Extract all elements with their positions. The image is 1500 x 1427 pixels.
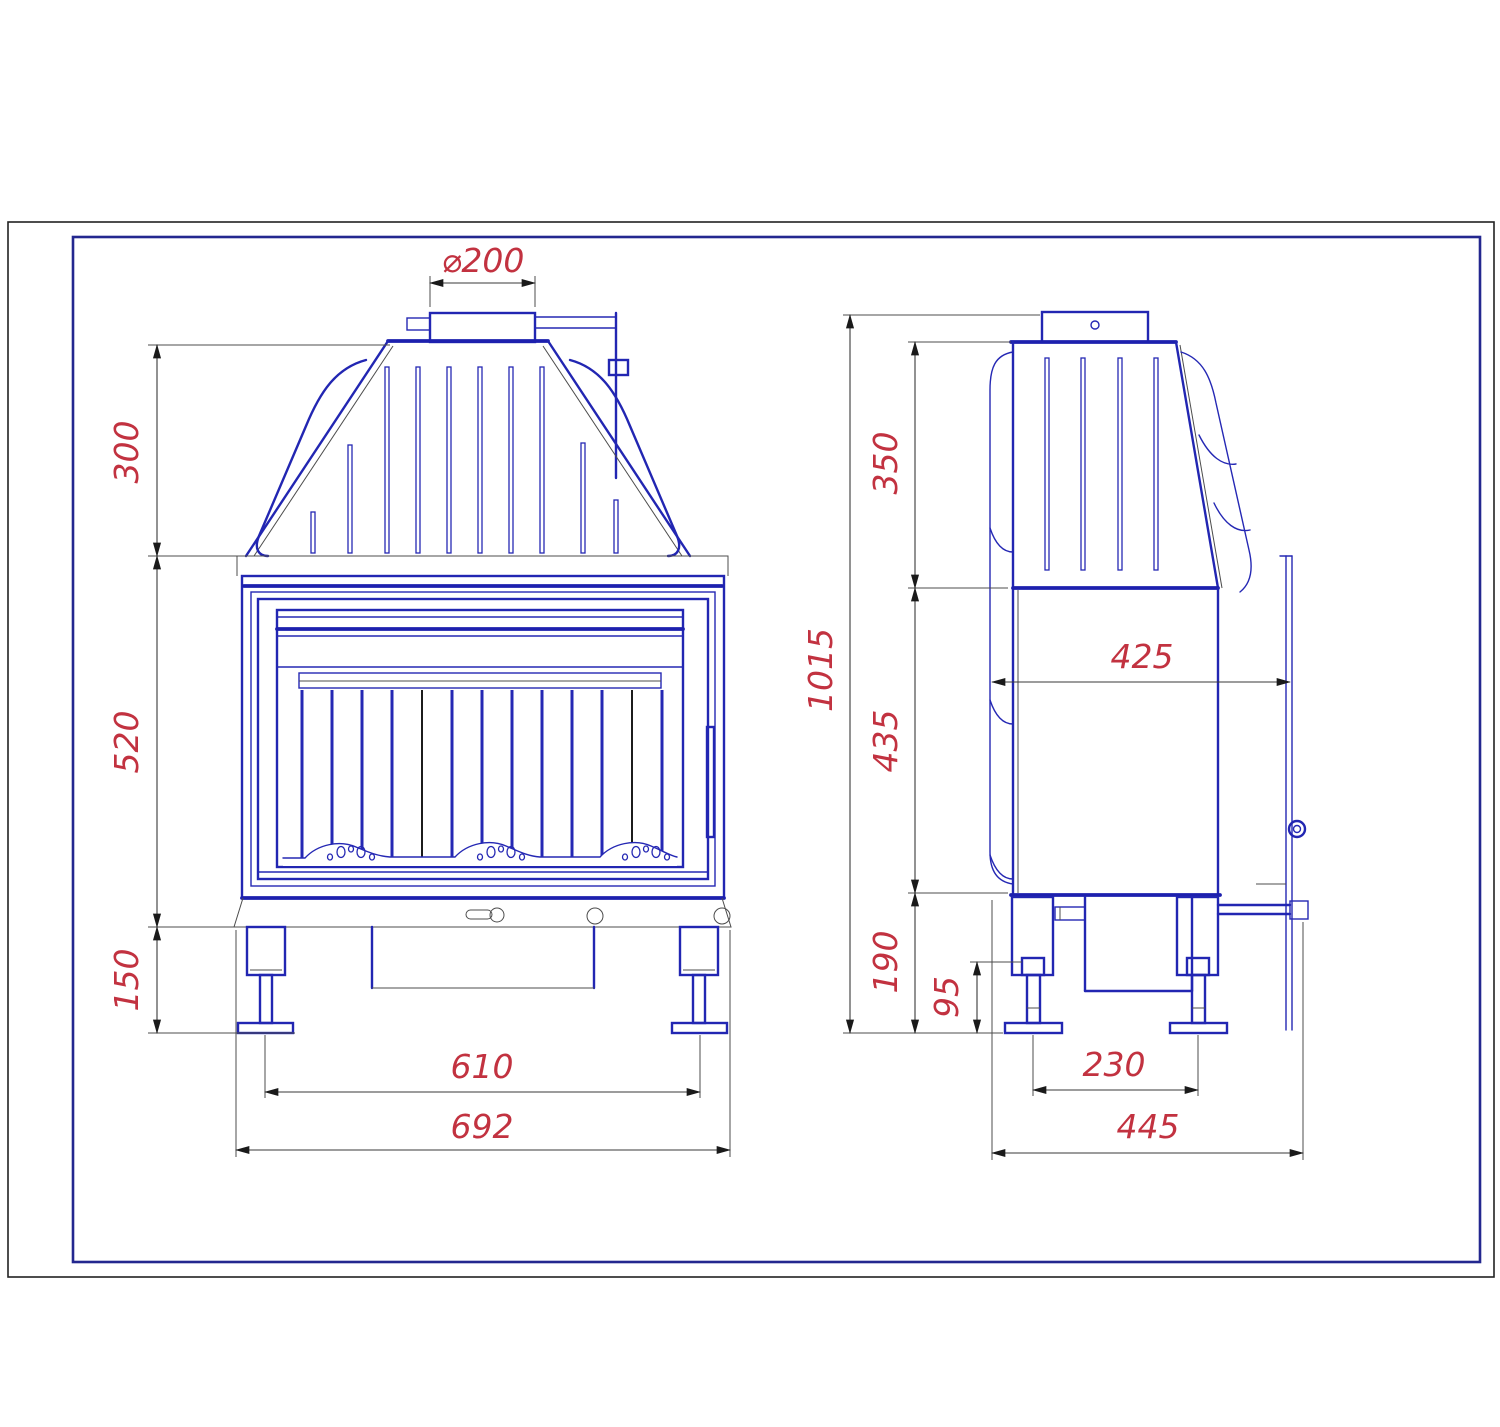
firebox-front — [242, 576, 724, 898]
collar-hole — [1091, 321, 1099, 329]
hood-front — [246, 341, 690, 556]
dim-side-foot-height: 95 — [927, 976, 966, 1018]
foot-left — [238, 1023, 293, 1033]
dim-side-overall-height: 1015 — [801, 628, 840, 712]
dim-side-base-height: 190 — [866, 931, 905, 994]
hood-fin-slots-side — [1045, 358, 1158, 570]
flue-collar-front — [407, 313, 628, 478]
dim-side-overall-depth: 445 — [1117, 1107, 1180, 1146]
hood-side — [990, 342, 1251, 884]
dim-front-hood-height: 300 — [107, 421, 146, 484]
foot-right — [672, 1023, 727, 1033]
dim-side-hood-height: 350 — [866, 432, 905, 495]
air-control-lever — [466, 908, 504, 922]
body-side — [1011, 342, 1220, 895]
front-view — [234, 313, 731, 1033]
leg-side-right — [1177, 897, 1218, 975]
base-band-front — [234, 898, 731, 927]
door-glass — [277, 610, 683, 867]
foot-side-left — [1005, 1023, 1062, 1033]
technical-drawing-page: ⌀200 300 520 150 610 692 1015 350 435 19… — [0, 0, 1500, 1427]
flue-bracket — [609, 360, 628, 375]
foot-side-right — [1170, 1023, 1227, 1033]
grille-bars — [302, 690, 662, 858]
fireplace-two-view-drawing: ⌀200 300 520 150 610 692 1015 350 435 19… — [0, 0, 1500, 1427]
dim-side-firebox-height: 435 — [866, 710, 905, 773]
base-side — [1005, 897, 1227, 1033]
door-hinge — [707, 727, 714, 837]
door-plane-side — [1218, 556, 1308, 1030]
leg-left — [247, 927, 285, 975]
legs-front — [238, 927, 727, 1033]
hood-base-plate — [237, 556, 728, 576]
leg-right — [680, 927, 718, 975]
dim-side-feet-spacing: 230 — [1083, 1045, 1146, 1084]
dim-front-feet-spacing: 610 — [451, 1047, 514, 1086]
hood-fins-front — [311, 367, 618, 553]
dim-front-base-height: 150 — [107, 949, 146, 1012]
dim-front-firebox-height: 520 — [107, 711, 146, 774]
dim-flue-diameter: ⌀200 — [442, 241, 525, 280]
flue-collar-side — [1042, 312, 1148, 342]
leg-side-left — [1012, 897, 1053, 975]
dim-front-overall-width: 692 — [451, 1107, 514, 1146]
dim-side-body-depth: 425 — [1111, 637, 1174, 676]
inner-drawing-frame — [73, 237, 1480, 1262]
outer-drawing-frame — [8, 222, 1494, 1277]
ash-pan-front — [372, 927, 594, 988]
hood-corner-profile-left — [990, 352, 1013, 884]
damper-knob — [587, 908, 603, 924]
